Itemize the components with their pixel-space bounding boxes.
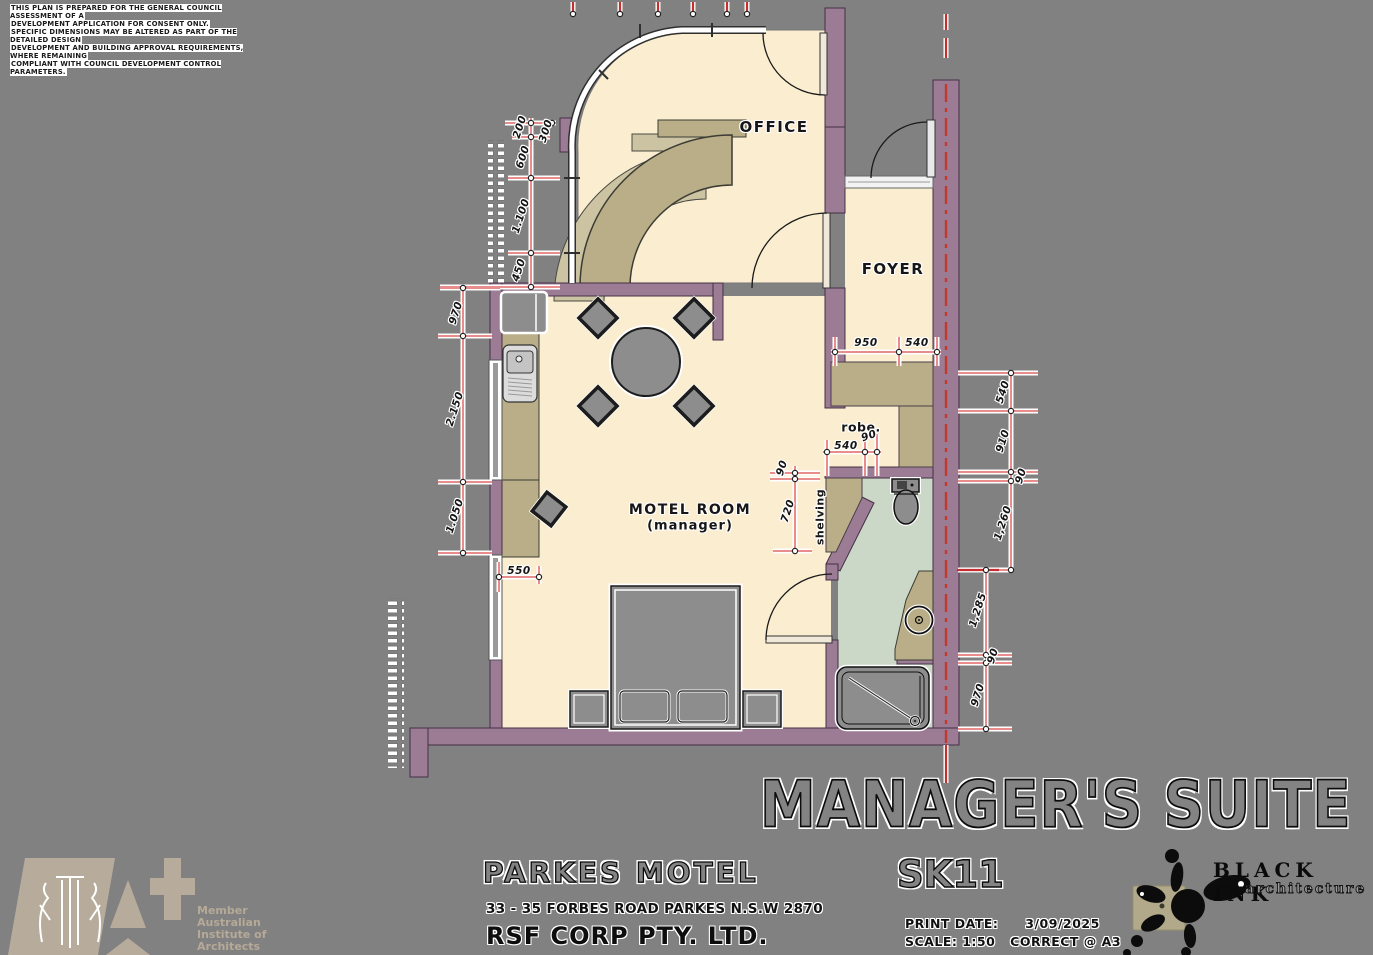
aia-member-text: Member Australian Institute of Architect… bbox=[197, 905, 266, 953]
kitchen-sink bbox=[503, 345, 537, 402]
aia-logo bbox=[8, 858, 195, 955]
aia-line3: Architects bbox=[197, 940, 260, 953]
bed bbox=[611, 586, 740, 729]
client-company: RSF CORP PTY. LTD. bbox=[486, 922, 769, 950]
print-date-label: PRINT DATE: bbox=[905, 916, 998, 931]
sheet-title: MANAGER'S SUITE bbox=[760, 768, 1352, 843]
room-label-motel-room: MOTEL ROOM bbox=[629, 502, 751, 518]
room-label-shelving: shelving bbox=[814, 489, 827, 545]
drawing-number: SK11 bbox=[897, 853, 1004, 896]
disclaimer-line: DEVELOPMENT APPLICATION FOR CONSENT ONLY… bbox=[10, 20, 210, 28]
shower bbox=[837, 667, 929, 729]
print-date-row: PRINT DATE: 3/09/2025 bbox=[905, 916, 1100, 931]
disclaimer-note: THIS PLAN IS PREPARED FOR THE GENERAL CO… bbox=[10, 4, 270, 76]
scale-note: CORRECT @ A3 bbox=[1000, 934, 1121, 949]
scale-label: SCALE: 1:50 bbox=[905, 934, 995, 949]
black-ink-subtitle: architecture bbox=[1245, 881, 1366, 897]
disclaimer-line: DEVELOPMENT AND BUILDING APPROVAL REQUIR… bbox=[10, 44, 243, 60]
project-address: 33 - 35 FORBES ROAD PARKES N.S.W 2870 bbox=[486, 901, 823, 917]
floor-plan-sheet: THIS PLAN IS PREPARED FOR THE GENERAL CO… bbox=[0, 0, 1373, 955]
print-date-value: 3/09/2025 bbox=[1003, 916, 1100, 931]
paving-strips bbox=[388, 140, 504, 768]
room-label-robe: robe. bbox=[841, 420, 880, 435]
scale-row: SCALE: 1:50 CORRECT @ A3 bbox=[905, 934, 1121, 949]
disclaimer-line: SPECIFIC DIMENSIONS MAY BE ALTERED AS PA… bbox=[10, 28, 237, 44]
room-label-foyer: FOYER bbox=[862, 260, 925, 278]
entry-sill bbox=[845, 176, 933, 188]
room-label-office: OFFICE bbox=[739, 118, 808, 136]
project-name: PARKES MOTEL bbox=[483, 856, 759, 889]
disclaimer-line: COMPLIANT WITH COUNCIL DEVELOPMENT CONTR… bbox=[10, 60, 221, 76]
toilet bbox=[892, 479, 919, 524]
fridge bbox=[501, 292, 547, 333]
room-label-manager: (manager) bbox=[647, 519, 733, 534]
disclaimer-line: THIS PLAN IS PREPARED FOR THE GENERAL CO… bbox=[10, 4, 222, 20]
